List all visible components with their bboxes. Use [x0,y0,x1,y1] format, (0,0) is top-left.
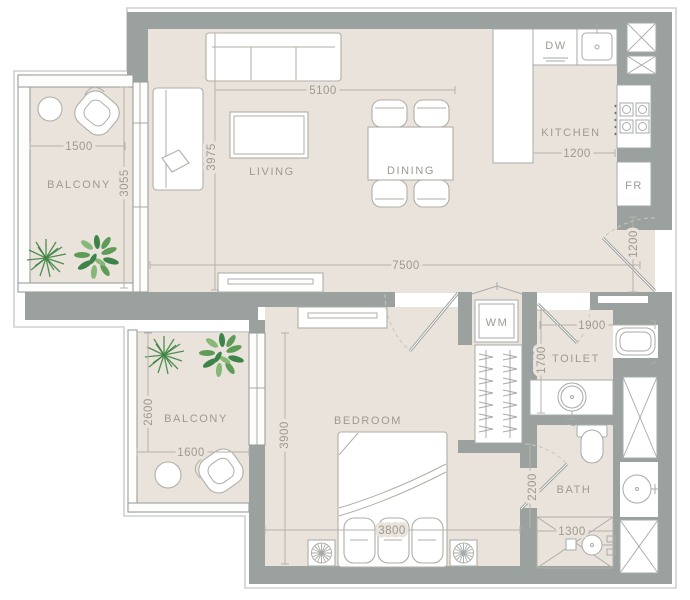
coffee-table [230,112,308,158]
vent-shaft-icon [623,377,657,458]
svg-text:1700: 1700 [536,346,548,374]
svg-text:1200: 1200 [628,230,640,258]
room-label-balcony-bottom: BALCONY [164,413,228,425]
wall-above-bath-door [520,453,537,468]
wall-living-west [127,12,148,82]
room-label-bath: BATH [557,484,592,496]
svg-text:3975: 3975 [206,143,218,171]
wall-living-bedroom [258,292,395,307]
svg-text:1200: 1200 [563,148,591,160]
wall-band-mid [25,292,258,320]
svg-text:3055: 3055 [119,169,131,197]
room-label-bedroom: BEDROOM [334,415,402,427]
appliance-label-fr: FR [625,180,643,192]
vent-shaft-icon [627,23,656,52]
dining-chair [372,180,407,207]
svg-text:3800: 3800 [378,525,406,537]
balcony-top-wall-top [18,75,133,87]
dining-chair [414,100,449,127]
balcony-bottom-wall-left [128,330,137,512]
room-label-dining: DINING [387,165,435,177]
floor-plan-svg: 5100 3975 1500 3055 7500 1200 [0,0,690,600]
stove-icon [615,85,651,148]
wardrobe [475,345,522,443]
tv-console-bedroom [298,307,387,328]
balcony-bottom-wall-bottom [128,503,249,512]
tv-console-living [218,273,323,292]
wall-wm-left [458,292,472,345]
niche-shelf [598,296,648,303]
room-label-toilet: TOILET [552,353,600,365]
vent-shaft-icon [627,56,656,74]
svg-text:5100: 5100 [309,85,337,97]
svg-text:2200: 2200 [527,473,539,501]
svg-text:2600: 2600 [143,398,155,426]
sofa [206,33,341,81]
room-label-living: LIVING [249,166,295,178]
room-label-balcony-top: BALCONY [47,179,111,191]
room-label-kitchen: KITCHEN [541,127,600,139]
wall-bedroom-west [249,445,265,571]
shower-drain-icon [582,535,602,555]
side-table [155,462,181,488]
bedside-table [450,540,477,566]
chaise-sofa [153,88,203,190]
appliance-label-dw: DW [545,40,567,52]
svg-text:1300: 1300 [558,526,586,538]
svg-text:7500: 7500 [392,260,420,272]
svg-text:1600: 1600 [177,447,205,459]
floor-plan: 5100 3975 1500 3055 7500 1200 [0,0,690,600]
svg-text:1500: 1500 [65,141,93,153]
svg-text:1900: 1900 [578,320,606,332]
wall-top [127,12,672,29]
utility [472,282,522,443]
bed [338,432,447,567]
appliance-label-wm: WM [486,317,509,329]
kitchen-counter [493,29,533,163]
bath-sink [620,462,660,517]
vent-shaft-icon [620,520,658,573]
side-table [38,97,62,121]
bedside-table [308,540,335,566]
shower-valve-icon [566,539,576,550]
dining-chair [372,100,407,127]
wall-toilet-bath [525,415,613,425]
svg-text:3900: 3900 [279,421,291,449]
dining-chair [414,180,449,207]
wall-below-bath-door [520,508,537,568]
wall-bedroom-nw [249,320,265,333]
wall-bottom [249,566,672,584]
bathtub [613,320,658,364]
balcony-top-wall-bottom [18,283,133,292]
